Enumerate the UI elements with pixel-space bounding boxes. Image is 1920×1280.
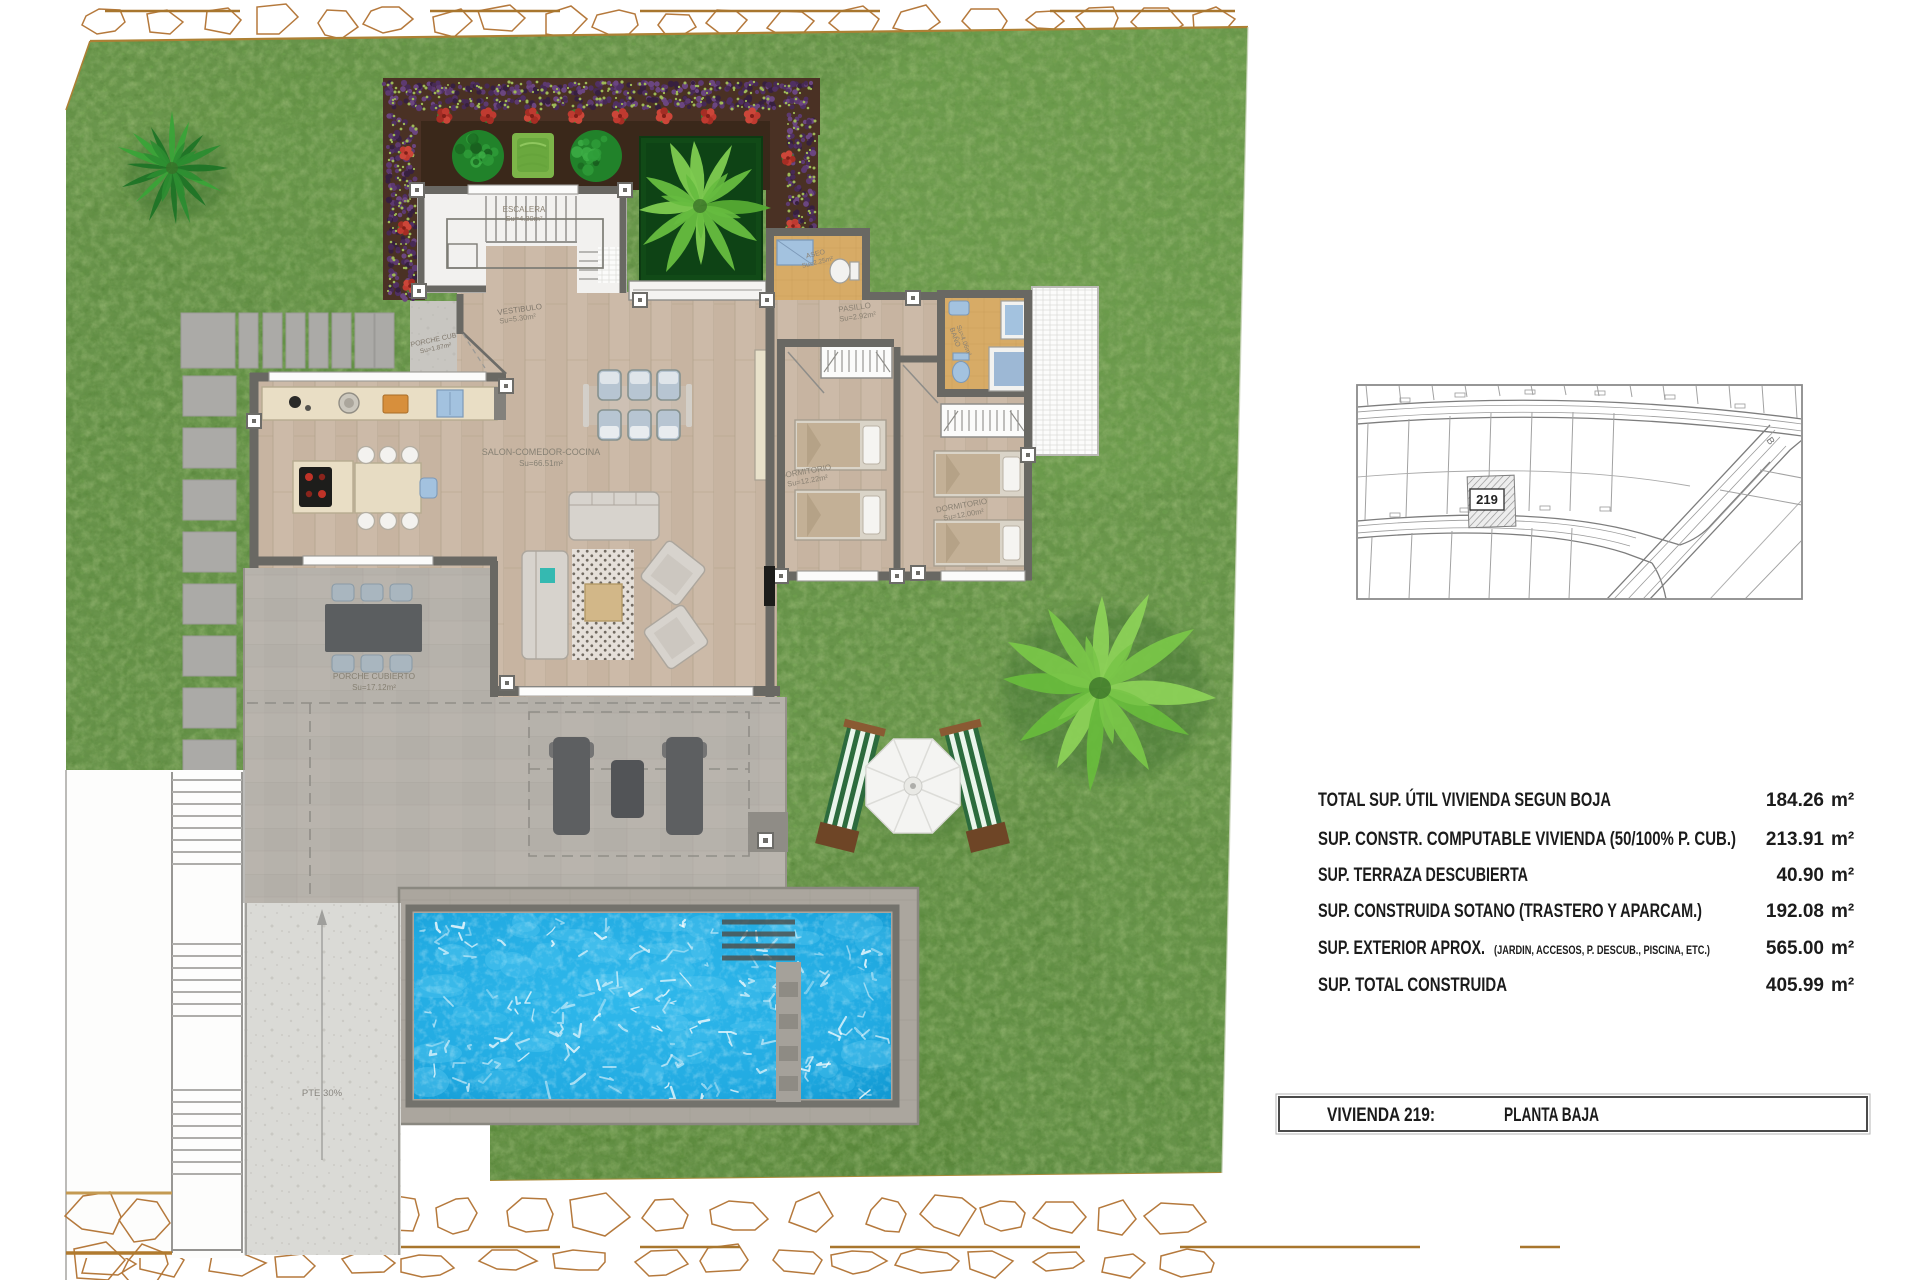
svg-text:m²: m²	[1831, 975, 1854, 996]
svg-text:PTE 30%: PTE 30%	[302, 1088, 343, 1099]
svg-text:m²: m²	[1831, 865, 1854, 886]
svg-text:m²: m²	[1831, 901, 1854, 922]
svg-text:405.99: 405.99	[1766, 975, 1824, 996]
svg-text:(JARDIN, ACCESOS, P. DESCUB.,: (JARDIN, ACCESOS, P. DESCUB., PISCINA, E…	[1494, 945, 1710, 957]
svg-text:565.00: 565.00	[1766, 938, 1824, 959]
svg-text:213.91: 213.91	[1766, 829, 1825, 850]
svg-text:219: 219	[1476, 492, 1498, 507]
svg-text:40.90: 40.90	[1776, 865, 1824, 886]
svg-text:m²: m²	[1831, 829, 1854, 850]
svg-text:SUP. TERRAZA DESCUBIERTA: SUP. TERRAZA DESCUBIERTA	[1318, 865, 1528, 886]
svg-text:PLANTA BAJA: PLANTA BAJA	[1504, 1105, 1599, 1126]
svg-text:184.26: 184.26	[1766, 790, 1824, 811]
svg-text:SUP. TOTAL CONSTRUIDA: SUP. TOTAL CONSTRUIDA	[1318, 975, 1507, 996]
svg-text:Su=4.80m²: Su=4.80m²	[506, 214, 543, 223]
svg-text:m²: m²	[1831, 790, 1854, 811]
svg-text:SUP. CONSTR. COMPUTABLE VIVIEN: SUP. CONSTR. COMPUTABLE VIVIENDA (50/100…	[1318, 829, 1736, 850]
svg-text:VIVIENDA 219:: VIVIENDA 219:	[1327, 1105, 1435, 1126]
svg-text:m²: m²	[1831, 938, 1854, 959]
svg-text:SALON-COMEDOR-COCINA: SALON-COMEDOR-COCINA	[482, 447, 601, 457]
svg-text:Su=17.12m²: Su=17.12m²	[352, 683, 396, 692]
svg-text:SUP. CONSTRUIDA SOTANO (TRASTE: SUP. CONSTRUIDA SOTANO (TRASTERO Y APARC…	[1318, 901, 1702, 922]
svg-text:Su=66.51m²: Su=66.51m²	[519, 459, 563, 468]
svg-text:SUP. EXTERIOR APROX.: SUP. EXTERIOR APROX.	[1318, 938, 1485, 959]
svg-text:192.08: 192.08	[1766, 901, 1824, 922]
svg-text:PORCHE CUBIERTO: PORCHE CUBIERTO	[333, 671, 416, 681]
svg-text:TOTAL SUP. ÚTIL VIVIENDA SEGUN: TOTAL SUP. ÚTIL VIVIENDA SEGUN BOJA	[1318, 789, 1611, 811]
svg-text:ESCALERA: ESCALERA	[503, 205, 546, 214]
